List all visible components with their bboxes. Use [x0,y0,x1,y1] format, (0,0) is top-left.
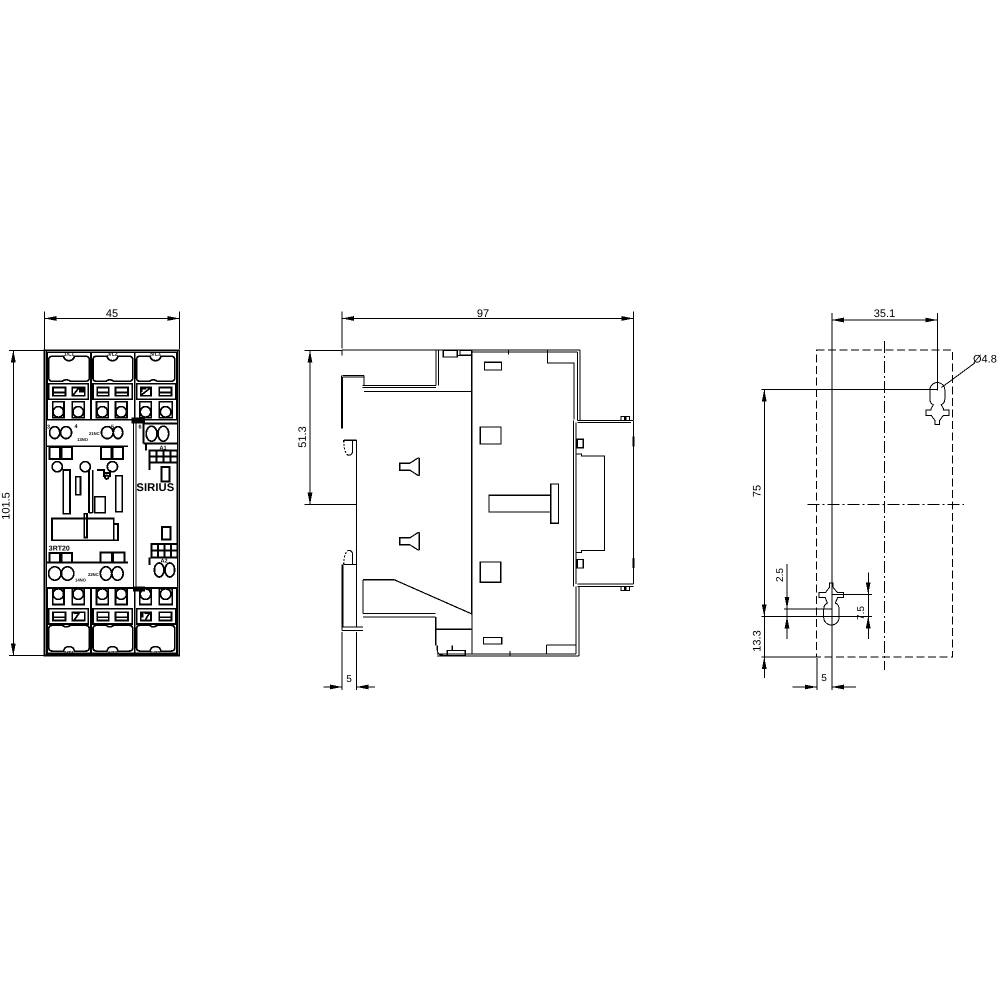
svg-text:75: 75 [752,485,764,497]
svg-text:6/T3: 6/T3 [150,651,160,657]
svg-text:2/T1: 2/T1 [64,651,74,657]
svg-text:21NC: 21NC [89,431,100,436]
svg-text:35.1: 35.1 [874,308,895,320]
svg-text:3RT20: 3RT20 [49,546,70,553]
svg-text:97: 97 [477,308,489,320]
svg-text:13NO: 13NO [77,437,89,442]
svg-text:7.5: 7.5 [856,606,867,620]
svg-text:4: 4 [74,424,78,430]
svg-text:3/L2: 3/L2 [107,352,117,358]
svg-text:4/T2: 4/T2 [107,651,117,657]
svg-text:5: 5 [821,673,827,684]
svg-text:Ø4.8: Ø4.8 [973,354,997,366]
svg-text:SIRIUS: SIRIUS [136,482,174,494]
svg-text:5: 5 [346,674,352,685]
svg-text:1/L1: 1/L1 [64,352,74,358]
svg-text:2.5: 2.5 [775,568,786,582]
svg-text:51.3: 51.3 [297,426,309,447]
svg-text:22NC: 22NC [88,572,99,577]
svg-text:45: 45 [106,308,118,320]
svg-text:101.5: 101.5 [1,492,13,520]
svg-text:5/L3: 5/L3 [150,352,160,358]
svg-text:14NO: 14NO [75,578,87,583]
svg-text:13.3: 13.3 [752,630,764,651]
svg-text:6: 6 [138,425,141,431]
